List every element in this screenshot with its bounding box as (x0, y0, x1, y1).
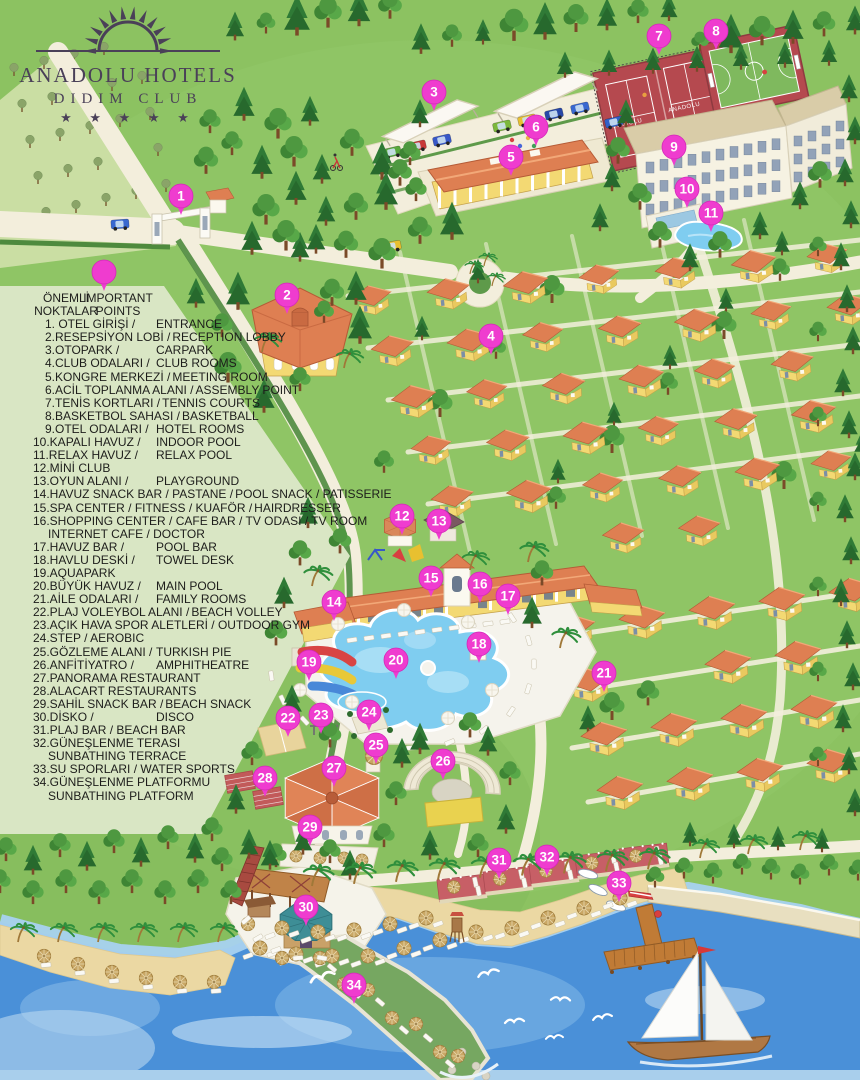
legend-item-en: BASKETBALL (182, 410, 259, 423)
legend-item-tr: 27.PANORAMA RESTAURANT (33, 672, 203, 685)
svg-text:9: 9 (670, 140, 678, 155)
svg-text:21: 21 (596, 666, 612, 681)
svg-text:4: 4 (487, 329, 495, 344)
legend-item-tr: 17.HAVUZ BAR / (33, 541, 156, 554)
resort-map-canvas: ANADOLUANADOLU12345678910111213141516171… (0, 0, 860, 1080)
legend-item-27: 27.PANORAMA RESTAURANT (33, 672, 353, 685)
svg-text:33: 33 (611, 876, 627, 891)
svg-text:6: 6 (532, 120, 540, 135)
legend-item-tr: 7.TENİS KORTLARI / (45, 397, 162, 410)
legend-item-en: ASSEMBLY POINT (196, 384, 300, 397)
legend-panel: ÖNEMLİIMPORTANTNOKTALARPOINTS1. OTEL GİR… (33, 292, 353, 803)
svg-text:32: 32 (539, 850, 554, 865)
legend-item-en: HAIRDRESSER (254, 502, 341, 515)
legend-item-15: 15.SPA CENTER / FITNESS / KUAFÖR /HAIRDR… (33, 502, 353, 515)
svg-text:10: 10 (679, 182, 694, 197)
svg-text:13: 13 (431, 514, 447, 529)
legend-item-en: POOL SNACK / PATISSERIE (235, 488, 392, 501)
legend-item-34: 34.GÜNEŞLENME PLATFORMU (33, 776, 353, 789)
legend-item-tr: 6.ACİL TOPLANMA ALANI / (45, 384, 196, 397)
legend-item-en: CLUB ROOMS (156, 357, 237, 370)
legend-item-34-line2: SUNBATHING PLATFORM (33, 790, 353, 803)
legend-item-17: 17.HAVUZ BAR /POOL BAR (33, 541, 353, 554)
sun-logo-icon (28, 4, 228, 56)
legend-item-tr: 4.CLUB ODALARI / (45, 357, 156, 370)
legend-item-en: TOWEL DESK (156, 554, 234, 567)
svg-text:31: 31 (491, 853, 507, 868)
legend-item-tr: 28.ALACART RESTAURANTS (33, 685, 198, 698)
legend-item-en: TENNIS COURTS (162, 397, 260, 410)
svg-text:26: 26 (435, 754, 451, 769)
legend-item-6: 6.ACİL TOPLANMA ALANI /ASSEMBLY POINT (33, 384, 353, 397)
svg-text:11: 11 (704, 206, 719, 221)
legend-item-28: 28.ALACART RESTAURANTS (33, 685, 353, 698)
legend-item-18: 18.HAVLU DESKİ /TOWEL DESK (33, 554, 353, 567)
legend-item-tr: 18.HAVLU DESKİ / (33, 554, 156, 567)
legend-item-16-line2: INTERNET CAFE / DOCTOR (33, 528, 353, 541)
svg-text:30: 30 (298, 900, 313, 915)
legend-item-16: 16.SHOPPING CENTER / CAFE BAR / TV ODASI… (33, 515, 353, 528)
legend-item-tr: 24.STEP / AEROBIC (33, 632, 156, 645)
svg-text:1: 1 (177, 189, 185, 204)
legend-item-14: 14.HAVUZ SNACK BAR / PASTANE /POOL SNACK… (33, 488, 353, 501)
svg-text:20: 20 (388, 653, 403, 668)
legend-item-4: 4.CLUB ODALARI /CLUB ROOMS (33, 357, 353, 370)
svg-text:12: 12 (394, 509, 409, 524)
legend-item-26: 26.ANFİTİYATRO /AMPHITHEATRE (33, 659, 353, 672)
svg-text:25: 25 (368, 738, 384, 753)
legend-item-en: AMPHITHEATRE (156, 659, 249, 672)
svg-text:3: 3 (430, 85, 438, 100)
legend-item-25: 25.GÖZLEME ALANI /TURKISH PIE (33, 646, 353, 659)
legend-item-en: POOL BAR (156, 541, 217, 554)
legend-item-tr: 26.ANFİTİYATRO / (33, 659, 156, 672)
legend-item-24: 24.STEP / AEROBIC (33, 632, 353, 645)
svg-text:29: 29 (302, 820, 317, 835)
hotel-name: ANADOLU HOTELS (2, 63, 254, 88)
legend-item-tr: 5.KONGRE MERKEZİ / (45, 371, 172, 384)
legend-item-en: MEETING ROOM (172, 371, 267, 384)
svg-text:8: 8 (712, 24, 720, 39)
svg-text:18: 18 (471, 637, 487, 652)
svg-text:24: 24 (361, 705, 377, 720)
hotel-subname: DIDIM CLUB (2, 91, 254, 108)
legend-item-en: TURKISH PIE (156, 646, 231, 659)
legend-item-tr: 15.SPA CENTER / FITNESS / KUAFÖR / (33, 502, 254, 515)
svg-text:5: 5 (507, 150, 515, 165)
legend-item-7: 7.TENİS KORTLARI /TENNIS COURTS (33, 397, 353, 410)
legend-item-tr: 25.GÖZLEME ALANI / (33, 646, 156, 659)
svg-text:17: 17 (500, 589, 515, 604)
logo-stars: ★ ★ ★ ★ ★ (2, 110, 254, 126)
legend-item-line2: INTERNET CAFE / DOCTOR (48, 528, 207, 541)
legend-item-tr: 8.BASKETBOL SAHASI / (45, 410, 182, 423)
legend-item-tr: 34.GÜNEŞLENME PLATFORMU (33, 776, 212, 789)
legend-item-8: 8.BASKETBOL SAHASI /BASKETBALL (33, 410, 353, 423)
svg-text:15: 15 (423, 571, 439, 586)
svg-text:34: 34 (346, 978, 362, 993)
svg-text:16: 16 (472, 577, 488, 592)
legend-item-tr: 16.SHOPPING CENTER / CAFE BAR / TV ODASI… (33, 515, 369, 528)
hotel-logo: ANADOLU HOTELS DIDIM CLUB ★ ★ ★ ★ ★ (2, 4, 254, 126)
legend-item-en: RELAX POOL (156, 449, 232, 462)
legend-item-line2: SUNBATHING PLATFORM (48, 790, 196, 803)
legend-item-5: 5.KONGRE MERKEZİ /MEETING ROOM (33, 371, 353, 384)
legend-item-tr: 14.HAVUZ SNACK BAR / PASTANE / (33, 488, 235, 501)
svg-text:7: 7 (655, 29, 663, 44)
